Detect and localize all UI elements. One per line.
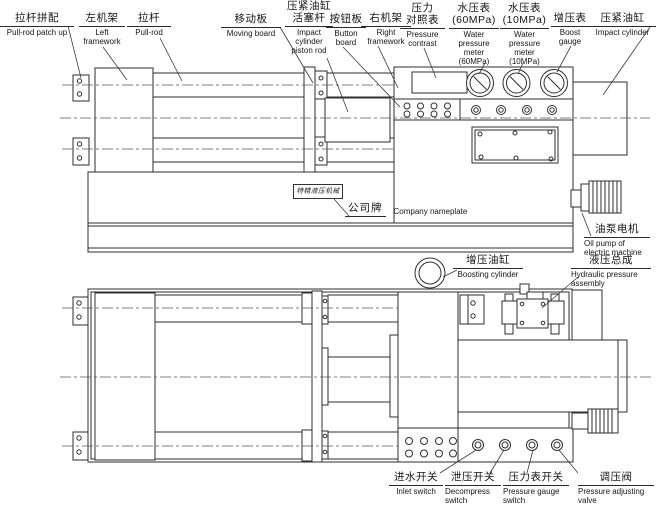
label-impact-cylinder: 压紧油缸 Impact cylinder [589,13,656,37]
switch-panel [398,428,573,462]
label-boost-gauge: 增压表 Boost gauge [551,13,589,46]
pull-rod-patch-tabs-top-view [73,297,88,460]
left-framework-top-view [95,293,155,460]
label-button-board-zh: 按钮板 [326,14,366,28]
impact-cylinder-body [573,82,627,155]
company-nameplate-box: 特精液压机械厂 [293,184,343,199]
label-button-board-en: Button board [326,28,366,47]
gauge-60mpa [467,70,494,97]
label-moving-board-zh: 移动板 [221,14,281,28]
pull-rod-patch-tabs [73,75,89,165]
label-pull-rod-patch-up-zh: 拉杆拼配 [0,13,74,27]
label-pressure-adjusting-valve-en: Pressure adjusting valve [578,486,654,505]
label-pull-rod-en: Pull-rod [127,27,171,37]
label-boosting-cylinder-en: Boosting cylinder [453,269,523,279]
label-pressure-contrast-en: Pressure contrast [400,29,445,48]
piston-rod-shape [325,98,390,142]
control-panel [394,67,573,120]
label-company-nameplate-zh: 公司牌 [345,203,386,217]
label-water-pressure-meter-60: 水压表 (60MPa) Water pressure meter (60MPa) [449,3,499,66]
label-pull-rod-patch-up: 拉杆拼配 Pull-rod patch up [0,13,74,37]
label-pressure-gauge-switch: 压力表开关 Pressure gauge switch [503,472,569,505]
label-left-framework: 左机架 Left framework [79,13,125,46]
label-boosting-cylinder-zh: 增压油缸 [453,255,523,269]
label-decompress-switch-en: Decompress switch [445,486,501,505]
label-impact-cylinder-zh: 压紧油缸 [589,13,656,27]
label-inlet-switch: 进水开关 Inlet switch [389,472,443,496]
label-company-nameplate: 公司牌 Company nameplate [345,203,467,217]
label-oil-pump-zh: 油泵电机 [584,224,650,238]
boost-gauge-dial [541,70,568,97]
label-pressure-gauge-switch-zh: 压力表开关 [503,472,569,486]
label-inlet-switch-en: Inlet switch [389,486,443,496]
oil-pump-motor-top-view [572,409,618,433]
label-pressure-gauge-switch-en: Pressure gauge switch [503,486,569,505]
label-boosting-cylinder: 增压油缸 Boosting cylinder [453,255,523,279]
label-pressure-adjusting-valve-zh: 调压阀 [578,472,654,486]
gauge-10mpa [503,70,530,97]
label-decompress-switch-zh: 泄压开关 [445,472,501,486]
label-pressure-adjusting-valve: 调压阀 Pressure adjusting valve [578,472,654,505]
label-oil-pump: 油泵电机 Oil pump of electric machine [584,224,650,257]
label-company-nameplate-en: Company nameplate [394,207,468,217]
label-water-pressure-meter-60-zh: 水压表 (60MPa) [449,3,499,29]
oil-pump-motor [571,181,621,213]
label-decompress-switch: 泄压开关 Decompress switch [445,472,501,505]
moving-board-plate [304,67,327,172]
back-plate [572,290,602,340]
label-button-board: 按钮板 Button board [326,14,366,47]
label-hydraulic-assembly: 液压总成 Hydraulic pressure assembly [571,255,651,288]
top-view [73,258,627,462]
label-hydraulic-assembly-zh: 液压总成 [571,255,651,269]
label-pull-rod: 拉杆 Pull-rod [127,13,171,37]
label-boost-gauge-zh: 增压表 [551,13,589,27]
label-water-pressure-meter-60-en: Water pressure meter (60MPa) [449,29,499,66]
label-hydraulic-assembly-en: Hydraulic pressure assembly [571,269,651,288]
label-moving-board: 移动板 Moving board [221,14,281,38]
label-water-pressure-meter-10-en: Water pressure meter (10MPa) [500,29,549,66]
label-pressure-contrast: 压力 对照表 Pressure contrast [400,3,445,48]
label-pull-rod-zh: 拉杆 [127,13,171,27]
label-impact-cylinder-en: Impact cylinder [589,27,656,37]
mount-bracket [460,295,484,324]
left-framework-shape [95,68,153,172]
boosting-cylinder-circle [415,258,445,288]
label-water-pressure-meter-10: 水压表 (10MPa) Water pressure meter (10MPa) [500,3,549,66]
side-view [73,67,627,252]
label-pull-rod-patch-up-en: Pull-rod patch up [0,27,74,37]
label-boost-gauge-en: Boost gauge [551,27,589,46]
hydraulic-press-diagram: 拉杆拼配 Pull-rod patch up 左机架 Left framewor… [0,0,671,509]
label-inlet-switch-zh: 进水开关 [389,472,443,486]
label-moving-board-en: Moving board [221,28,281,38]
label-pressure-contrast-zh: 压力 对照表 [400,3,445,29]
label-left-framework-zh: 左机架 [79,13,125,27]
impact-cylinder-top-view [458,340,627,412]
label-left-framework-en: Left framework [79,27,125,46]
label-water-pressure-meter-10-zh: 水压表 (10MPa) [500,3,549,29]
